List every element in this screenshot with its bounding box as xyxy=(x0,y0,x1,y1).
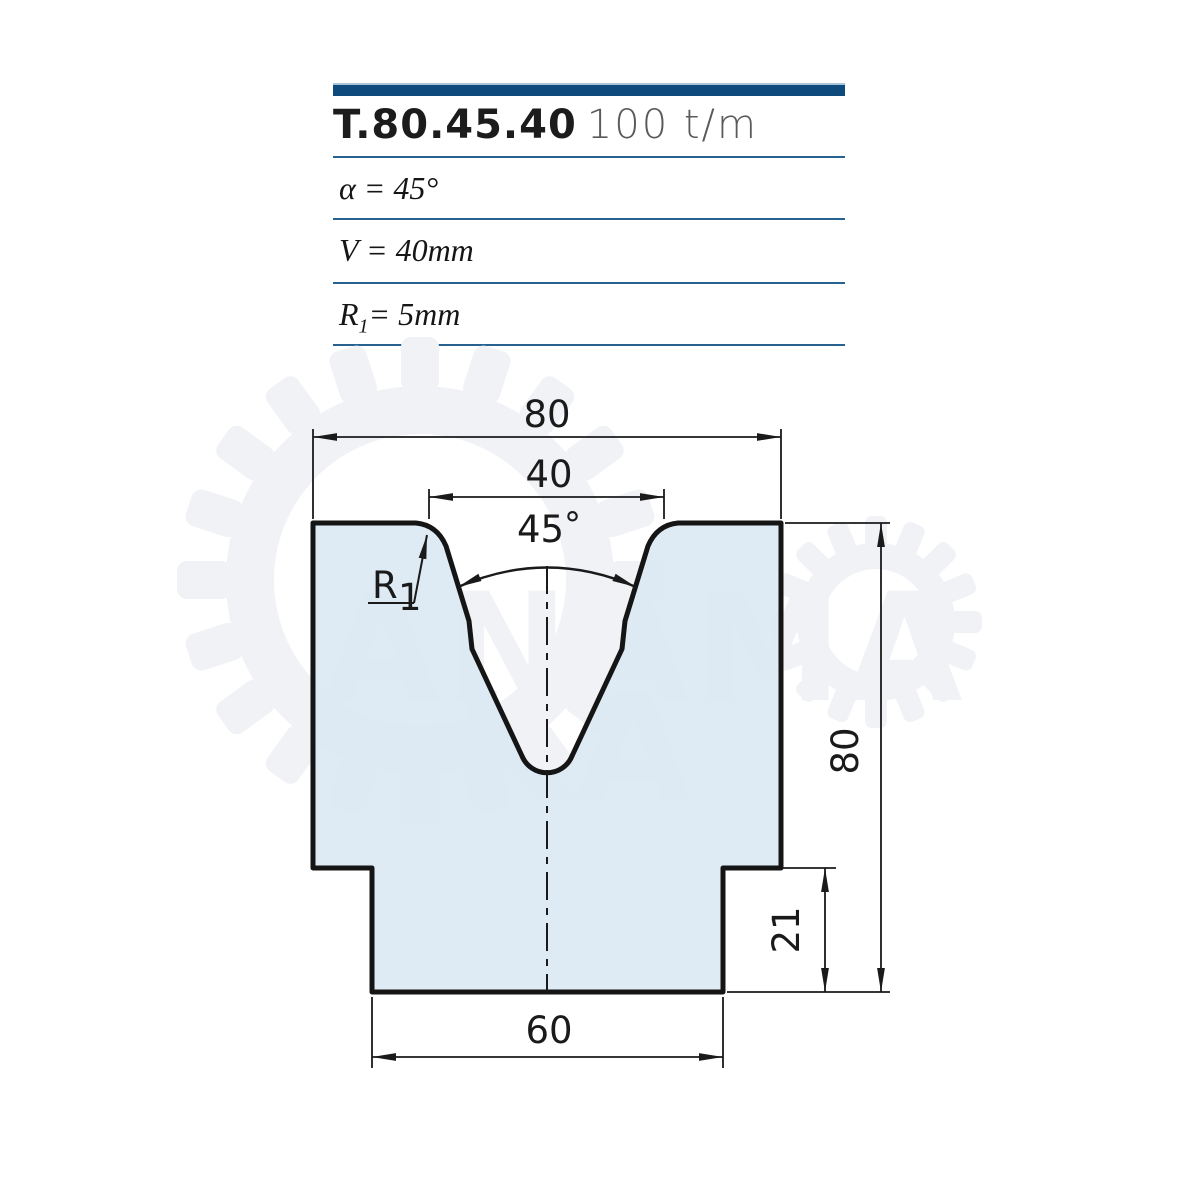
die-cross-section-drawing: ANAMA KA 80 40 45° R 1 xyxy=(0,0,1181,1181)
dim-bottom-width-value: 60 xyxy=(525,1009,572,1052)
dim-step-height-value: 21 xyxy=(765,906,808,953)
dim-top-width-value: 80 xyxy=(523,393,570,436)
radius-label-sub: 1 xyxy=(398,576,422,619)
dim-height-value: 80 xyxy=(824,727,867,774)
technical-sheet: T.80.45.40100 t/m α = 45° V = 40mm R1= 5… xyxy=(0,0,1181,1181)
dim-angle-value: 45° xyxy=(517,505,581,551)
angle-number: 45 xyxy=(517,508,564,551)
radius-label: R xyxy=(372,564,398,607)
degree-symbol: ° xyxy=(564,505,581,545)
dim-v-opening-value: 40 xyxy=(525,453,572,496)
